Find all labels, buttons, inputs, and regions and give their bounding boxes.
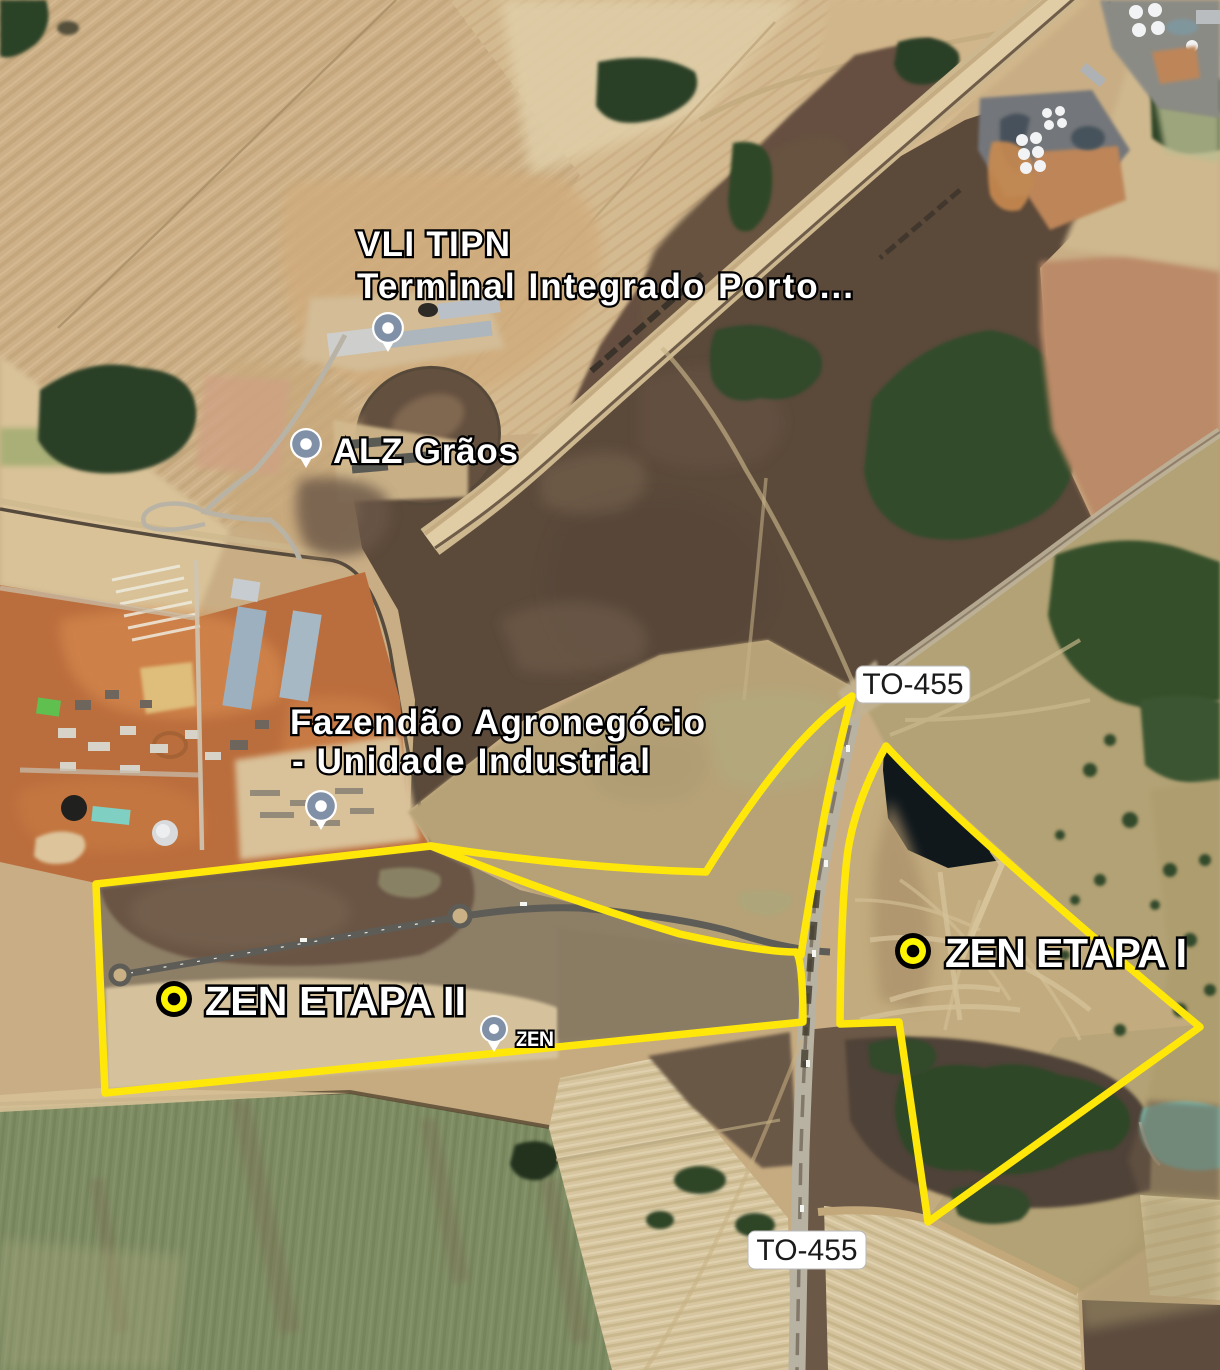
svg-text:VLI TIPN: VLI TIPN	[357, 225, 510, 264]
svg-text:ZEN: ZEN	[516, 1028, 554, 1051]
svg-text:TO-455: TO-455	[862, 668, 963, 701]
svg-text:ALZ Grãos: ALZ Grãos	[333, 432, 518, 471]
svg-text:ZEN ETAPA I: ZEN ETAPA I	[945, 930, 1187, 976]
svg-text:Fazendão Agronegócio: Fazendão Agronegócio	[290, 703, 705, 742]
svg-text:TO-455: TO-455	[756, 1234, 857, 1267]
svg-text:ZEN ETAPA II: ZEN ETAPA II	[205, 978, 466, 1024]
svg-text:Terminal Integrado Porto...: Terminal Integrado Porto...	[357, 267, 853, 306]
svg-text:- Unidade Industrial: - Unidade Industrial	[292, 742, 650, 781]
